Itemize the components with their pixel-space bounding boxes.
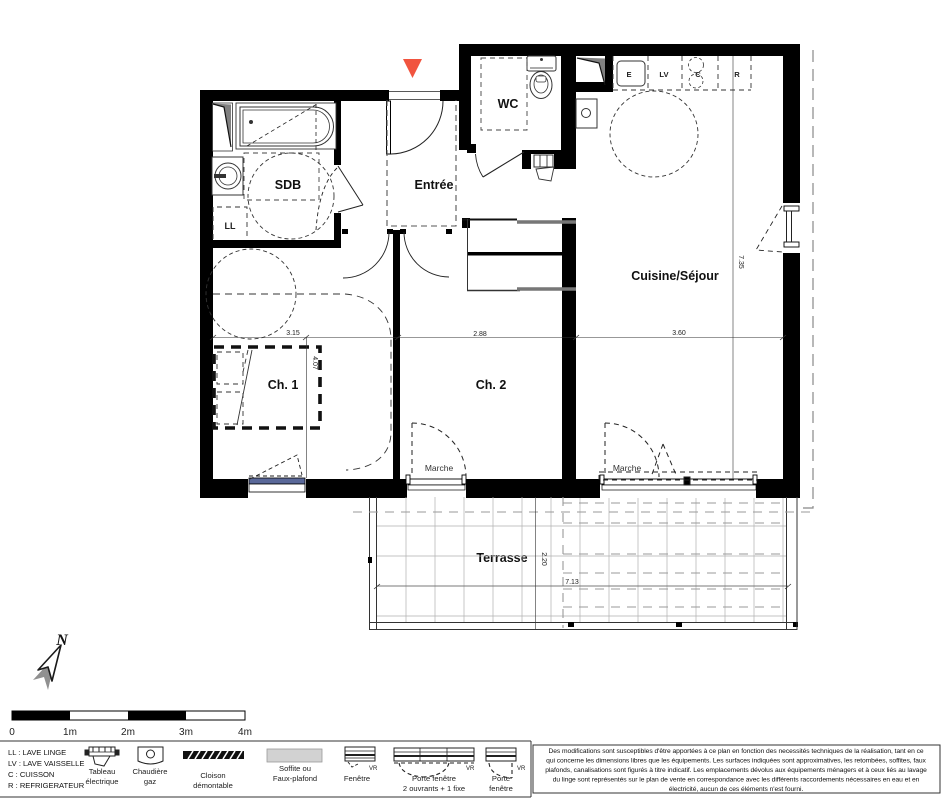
svg-text:Tableau: Tableau <box>89 767 116 776</box>
svg-text:4m: 4m <box>238 727 252 738</box>
svg-text:7.35: 7.35 <box>737 255 744 269</box>
svg-text:E: E <box>626 70 631 79</box>
svg-text:Marche: Marche <box>613 463 642 473</box>
svg-text:Soffite ou: Soffite ou <box>279 764 311 773</box>
svg-text:Marche: Marche <box>425 463 454 473</box>
svg-text:Cloison: Cloison <box>200 771 225 780</box>
svg-text:C: C <box>695 70 701 79</box>
svg-text:Porte: Porte <box>492 774 510 783</box>
svg-text:Entrée: Entrée <box>415 178 454 192</box>
svg-text:VR: VR <box>517 766 526 772</box>
svg-text:qui concerne les dimensions li: qui concerne les dimensions libres que l… <box>546 758 926 765</box>
svg-text:3m: 3m <box>179 727 193 738</box>
svg-text:3.60: 3.60 <box>672 330 686 337</box>
svg-text:électrique: électrique <box>86 777 119 786</box>
svg-text:0: 0 <box>9 727 15 738</box>
svg-text:démontable: démontable <box>193 781 233 790</box>
svg-text:LV : LAVE VAISSELLE: LV : LAVE VAISSELLE <box>8 759 84 768</box>
svg-text:C : CUISSON: C : CUISSON <box>8 770 54 779</box>
svg-text:R : REFRIGERATEUR: R : REFRIGERATEUR <box>8 781 85 790</box>
svg-text:VR: VR <box>369 766 378 772</box>
svg-text:LL: LL <box>225 221 236 231</box>
svg-text:gaz: gaz <box>144 777 156 786</box>
svg-text:Terrasse: Terrasse <box>476 551 527 565</box>
svg-text:3.15: 3.15 <box>286 330 300 337</box>
svg-text:LV: LV <box>659 70 669 79</box>
svg-text:électricité, aucun de ces élém: électricité, aucun de ces éléments n'est… <box>669 786 804 793</box>
svg-text:du linge sont représentés sur: du linge sont représentés sur le plan de… <box>553 777 920 784</box>
svg-text:N: N <box>55 632 69 649</box>
svg-text:2.20: 2.20 <box>540 552 547 566</box>
svg-text:Ch. 1: Ch. 1 <box>268 378 299 392</box>
svg-text:LL : LAVE LINGE: LL : LAVE LINGE <box>8 748 66 757</box>
svg-text:Faux-plafond: Faux-plafond <box>273 774 317 783</box>
svg-text:Des modifications sont suscept: Des modifications sont susceptibles d'êt… <box>548 748 923 755</box>
svg-text:2.88: 2.88 <box>473 331 487 338</box>
svg-text:Fenêtre: Fenêtre <box>344 774 370 783</box>
svg-text:SDB: SDB <box>275 178 301 192</box>
svg-text:plafonds, canalisations sont f: plafonds, canalisations sont figurés à t… <box>545 767 927 774</box>
svg-text:VR: VR <box>466 766 475 772</box>
svg-text:1m: 1m <box>63 727 77 738</box>
svg-text:Chaudière: Chaudière <box>132 767 167 776</box>
svg-text:Cuisine/Séjour: Cuisine/Séjour <box>631 269 719 283</box>
svg-text:2m: 2m <box>121 727 135 738</box>
svg-text:WC: WC <box>498 97 519 111</box>
svg-text:7.13: 7.13 <box>565 579 579 586</box>
svg-text:R: R <box>734 70 740 79</box>
svg-text:4.07: 4.07 <box>311 356 318 370</box>
svg-text:2 ouvrants + 1 fixe: 2 ouvrants + 1 fixe <box>403 784 465 793</box>
svg-text:Porte fenêtre: Porte fenêtre <box>412 774 456 783</box>
svg-text:Ch. 2: Ch. 2 <box>476 378 507 392</box>
svg-text:fenêtre: fenêtre <box>489 784 513 793</box>
